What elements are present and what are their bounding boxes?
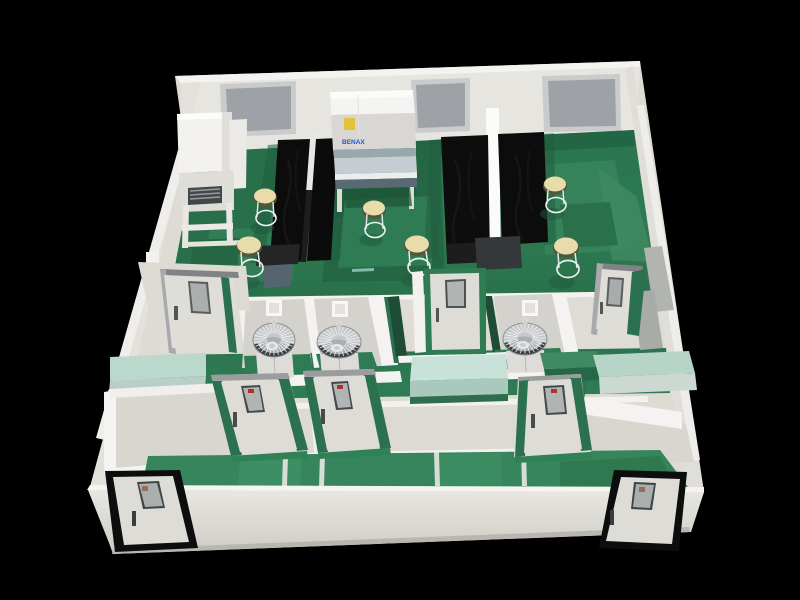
svg-text:BENAX: BENAX [342,139,365,146]
